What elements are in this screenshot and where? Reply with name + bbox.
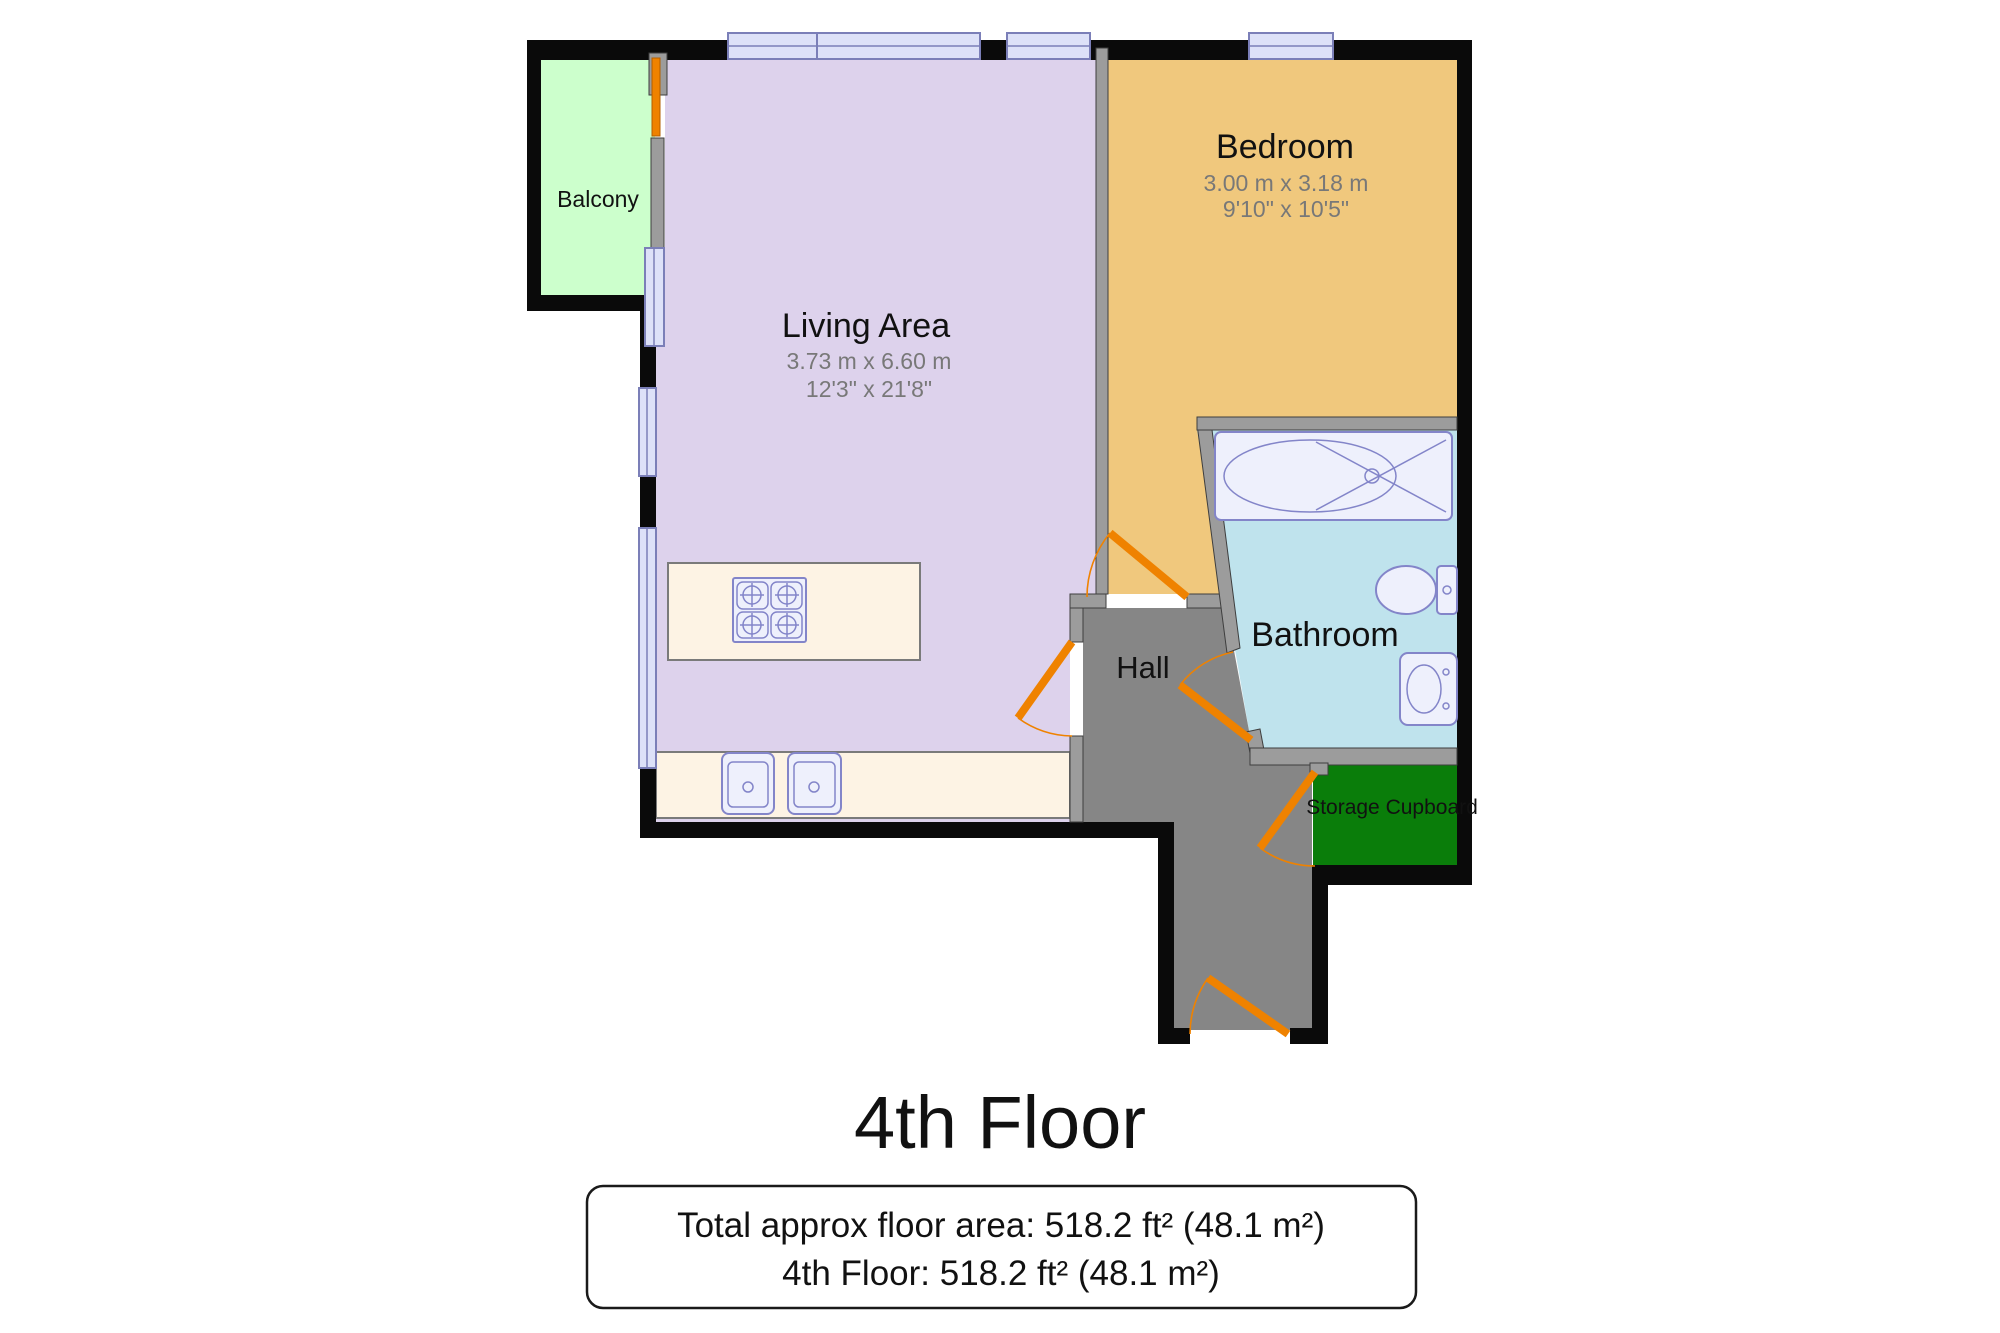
window-living-top-1 bbox=[728, 33, 817, 59]
stove-icon bbox=[733, 578, 806, 642]
window-bedroom-top bbox=[1249, 33, 1333, 59]
hall-label: Hall bbox=[1116, 650, 1169, 685]
balcony-door bbox=[652, 58, 660, 136]
page-title: 4th Floor bbox=[854, 1081, 1146, 1164]
wall-hall-stub-left bbox=[1158, 838, 1174, 1044]
window-balcony-partition bbox=[645, 248, 664, 346]
wall-hall-west-upper bbox=[1070, 608, 1083, 642]
wall-living-bedroom bbox=[1096, 48, 1108, 594]
floor-area-text: 4th Floor: 518.2 ft² (48.1 m²) bbox=[782, 1254, 1220, 1293]
kitchen-counter bbox=[656, 752, 1070, 818]
wall-bedroom-bottom-left bbox=[1070, 594, 1106, 608]
window-living-west-1 bbox=[639, 388, 656, 476]
floorplan-drawing: Balcony Living Area 3.73 m x 6.60 m 12'3… bbox=[0, 0, 2000, 1333]
total-area-text: Total approx floor area: 518.2 ft² (48.1… bbox=[677, 1206, 1325, 1245]
window-living-west-2 bbox=[639, 528, 656, 768]
wall-right bbox=[1457, 40, 1472, 885]
wall-hall-stub-right bbox=[1312, 865, 1328, 1044]
toilet-icon bbox=[1376, 566, 1457, 614]
living-area-label: Living Area bbox=[782, 307, 950, 345]
wall-balcony-bottom bbox=[527, 295, 655, 311]
room-balcony bbox=[541, 56, 655, 296]
bedroom-label: Bedroom bbox=[1216, 128, 1354, 166]
balcony-label: Balcony bbox=[557, 186, 639, 212]
storage-cupboard-label: Storage Cupboard bbox=[1306, 796, 1478, 819]
kitchen-sink-right-icon bbox=[788, 753, 841, 814]
bathroom-label: Bathroom bbox=[1251, 616, 1398, 654]
wall-bathroom-top bbox=[1197, 417, 1457, 430]
wall-living-bottom bbox=[640, 822, 1174, 838]
window-living-top-3 bbox=[1007, 33, 1090, 59]
window-living-top-2 bbox=[817, 33, 980, 59]
wall-bedroom-bottom-right bbox=[1187, 594, 1223, 608]
wall-balcony-left bbox=[527, 40, 541, 311]
bedroom-dimensions-imperial: 9'10" x 10'5" bbox=[1223, 196, 1349, 222]
wall-entry-bottom-left bbox=[1158, 1028, 1190, 1044]
bedroom-dimensions-metric: 3.00 m x 3.18 m bbox=[1204, 170, 1369, 196]
floorplan-page: Balcony Living Area 3.73 m x 6.60 m 12'3… bbox=[0, 0, 2000, 1333]
living-area-dimensions-imperial: 12'3" x 21'8" bbox=[806, 376, 932, 402]
wall-balcony-sill bbox=[651, 138, 664, 250]
wall-bathroom-bottom bbox=[1250, 748, 1457, 765]
living-area-dimensions-metric: 3.73 m x 6.60 m bbox=[787, 348, 952, 374]
bathtub-icon bbox=[1215, 432, 1452, 520]
kitchen-sink-left-icon bbox=[722, 753, 774, 814]
bathroom-sink-icon bbox=[1400, 653, 1457, 725]
wall-storage-bottom bbox=[1312, 865, 1472, 885]
wall-hall-west-lower bbox=[1070, 736, 1083, 822]
room-living-area bbox=[656, 58, 1096, 838]
